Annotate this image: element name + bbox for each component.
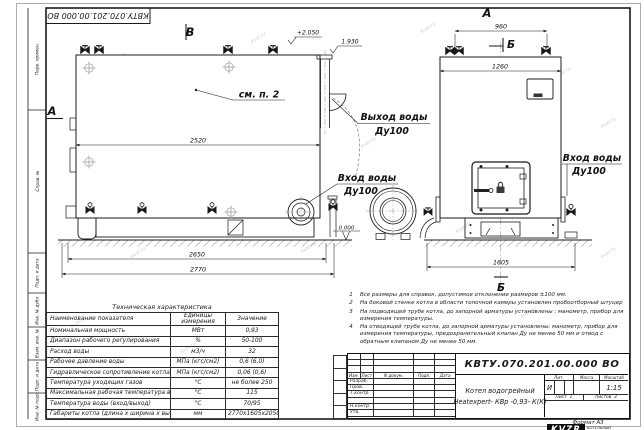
- view-label-a-side: А: [47, 104, 57, 118]
- margin-label: Взам. инв. №: [35, 328, 41, 358]
- elevation-zero: 0.000: [339, 226, 355, 232]
- product-name-line1: Котел водогрейный: [465, 387, 534, 395]
- spec-header-units: Единицы измерения: [171, 313, 226, 326]
- water-inlet-right-dn: Ду100: [571, 166, 606, 177]
- dim-2650: 2650: [189, 252, 205, 259]
- signature-table: Изм. Лист N докум. Подп. Дата Разраб. Пр…: [348, 354, 456, 418]
- dim-2770: 2770: [190, 267, 206, 274]
- spec-row: Температура воды (вход/выход)°С70/95: [47, 399, 279, 409]
- spec-row: Температура уходящих газов°Сне более 250: [47, 378, 279, 388]
- water-inlet-right-label: Вход воды: [563, 153, 622, 164]
- spec-row: Расход водым3/ч32: [47, 347, 279, 357]
- margin-label: Подп. и дата: [35, 258, 41, 288]
- safety-valve-icon: [269, 46, 278, 54]
- boiler-side-view: [66, 46, 360, 239]
- margin-label: Инв. № дубл.: [35, 295, 41, 324]
- view-label-b: В: [186, 25, 195, 39]
- scale-value: 1:15: [600, 381, 628, 395]
- spec-header-row: Наименование показателя Единицы измерени…: [47, 313, 279, 326]
- elevation-top: +2.050: [297, 30, 319, 37]
- title-block: Изм. Лист N докум. Подп. Дата Разраб. Пр…: [347, 353, 630, 419]
- right-pipe-connection: [561, 197, 577, 238]
- see-note-label: см. п. 2: [239, 90, 280, 101]
- margin-label: Инв. № подл.: [35, 391, 41, 421]
- top-stamp: КВТУ.070.201.00.000 ВО: [46, 8, 150, 24]
- titleblock-right: Лит. Масса Масштаб И 1:15 Лист1 Листов2: [545, 375, 628, 417]
- sheets-cell: Листов2: [584, 395, 628, 401]
- door-handle: [474, 189, 493, 193]
- spec-table-title: Техническая характеристика: [46, 303, 278, 311]
- note-item: 4На отводящей трубе котла, до запорной а…: [346, 324, 624, 346]
- notes-list: 1Все размеры для справок, допустимое отк…: [346, 292, 624, 347]
- safety-valve-icon: [542, 47, 551, 55]
- product-name: Котел водогрейный Heatexpert- КВр -0,93-…: [456, 375, 545, 417]
- sheet-cell: Лист1: [545, 395, 584, 401]
- format-label: Формат А3: [545, 420, 631, 426]
- water-outlet-label: Выход воды: [361, 112, 428, 123]
- water-inlet-left-dn: Ду100: [343, 186, 378, 197]
- left-pipe-connection: [420, 197, 440, 238]
- binding-cells: [333, 355, 347, 419]
- safety-valve-icon: [81, 46, 90, 54]
- dim-960: 960: [495, 24, 507, 31]
- section-label-b-top: Б: [507, 39, 515, 51]
- spec-header-value: Значение: [226, 313, 279, 326]
- safety-valve-icon: [224, 46, 233, 54]
- note-item: 3На подводящей трубе котла, до запорной …: [346, 309, 624, 324]
- water-inlet-left-label: Вход воды: [338, 173, 397, 184]
- note-item: 1Все размеры для справок, допустимое отк…: [346, 292, 624, 299]
- safety-valve-icon: [95, 46, 104, 54]
- stamp-doc-number: КВТУ.070.201.00.000 ВО: [47, 11, 148, 20]
- doc-number: КВТУ.070.201.00.000 ВО: [456, 354, 628, 375]
- water-outlet-dn: Ду100: [374, 126, 409, 137]
- boiler-front-view: [420, 42, 577, 293]
- sign-row-label: Утв.: [348, 410, 374, 416]
- lit-value: И: [545, 381, 555, 395]
- ground-line: [58, 240, 592, 247]
- company-name: КОТЕЛЬНЫЙ ЗАВОД РЭП: [587, 426, 611, 430]
- spec-row: Рабочее давление водыМПа (кгс/см2)0,6 (6…: [47, 357, 279, 367]
- spec-row: Номинальная мощностьМВт0,93: [47, 326, 279, 336]
- note-item: 2На боковой стенке котла в области топоч…: [346, 300, 624, 307]
- spec-row: Максимальная рабочая температура воды°С1…: [47, 388, 279, 398]
- dim-1260: 1260: [492, 64, 508, 71]
- margin-label: Подп. и дата: [35, 362, 41, 392]
- spec-table: Наименование показателя Единицы измерени…: [46, 312, 279, 420]
- mass-value: [574, 381, 600, 395]
- spec-row: Габариты котла (длина х ширина х высота)…: [47, 409, 279, 419]
- spec-header-name: Наименование показателя: [47, 313, 171, 326]
- spec-row: Гидравлическое сопротивление котлаМПа (к…: [47, 367, 279, 377]
- product-name-line2: Heatexpert- КВр -0,93- К(К): [453, 398, 546, 406]
- dim-2520: 2520: [190, 138, 206, 145]
- spec-row: Диапазон рабочего регулирования%50-100: [47, 336, 279, 346]
- elevation-outlet: 1.930: [341, 39, 358, 46]
- view-label-a-front: А: [482, 6, 492, 20]
- safety-valve-icon: [446, 47, 455, 55]
- dim-1605: 1605: [493, 260, 509, 267]
- safety-valve-icon: [455, 47, 464, 55]
- margin-labels: Перв. примен. Справ. № Подп. и дата Инв.…: [35, 43, 42, 421]
- drawing-sheet: kvzr.ru kvzr.ru kvzr.ru kvzr.ru kvzr.ru …: [0, 0, 644, 430]
- margin-label: Перв. примен.: [35, 43, 41, 75]
- margin-label: Справ. №: [35, 170, 41, 191]
